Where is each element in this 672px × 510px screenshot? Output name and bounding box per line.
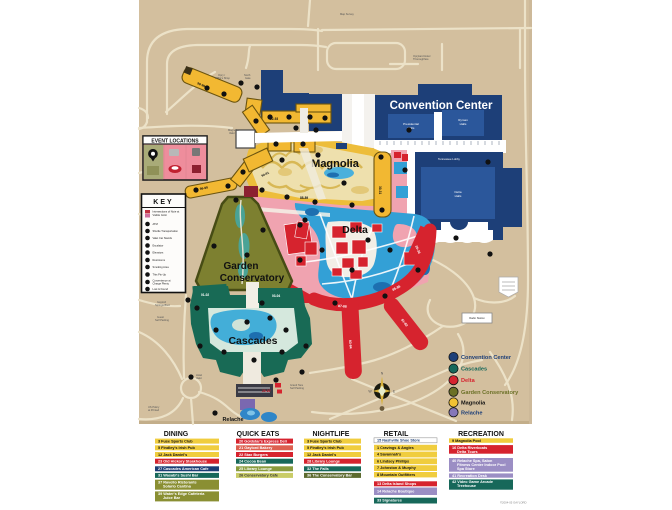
svg-text:Map Survey: Map Survey xyxy=(340,12,355,16)
svg-text:Cascades: Cascades xyxy=(461,367,487,373)
svg-text:23 Old Hickory Steakhouse: 23 Old Hickory Steakhouse xyxy=(158,460,207,464)
svg-text:Visible Color: Visible Color xyxy=(153,213,168,217)
svg-text:Tennessee Lobby: Tennessee Lobby xyxy=(438,157,461,161)
svg-text:Garden Conservatory: Garden Conservatory xyxy=(461,390,519,396)
svg-text:DINING: DINING xyxy=(164,431,189,438)
svg-text:Treehouse: Treehouse xyxy=(457,484,476,488)
svg-text:03-04: 03-04 xyxy=(272,294,280,298)
svg-text:Thoroughfare: Thoroughfare xyxy=(413,57,429,61)
svg-text:Valet: Valet xyxy=(229,131,235,135)
svg-text:Self Parking: Self Parking xyxy=(290,386,305,390)
svg-text:26 Conservatory Cafe: 26 Conservatory Cafe xyxy=(239,474,278,478)
svg-text:5 Findley's Irish Pub: 5 Findley's Irish Pub xyxy=(158,446,195,450)
svg-text:Delta: Delta xyxy=(461,378,476,384)
svg-text:Radio Station: Radio Station xyxy=(469,316,485,320)
svg-text:Escalator: Escalator xyxy=(153,244,164,248)
svg-text:32 The Falls: 32 The Falls xyxy=(307,467,329,471)
svg-text:Charge Plenty: Charge Plenty xyxy=(153,282,170,286)
svg-text:87-88: 87-88 xyxy=(338,304,347,309)
svg-text:KEY: KEY xyxy=(153,199,173,206)
svg-text:30-31: 30-31 xyxy=(378,186,382,194)
svg-text:Lost & Found: Lost & Found xyxy=(153,287,169,291)
svg-text:8 Mountain Outfitters: 8 Mountain Outfitters xyxy=(377,473,415,477)
svg-text:20 Goldstar's Express Deli: 20 Goldstar's Express Deli xyxy=(239,439,287,443)
svg-text:36 The Conservatory Bar: 36 The Conservatory Bar xyxy=(307,474,352,478)
svg-text:Delta Tours: Delta Tours xyxy=(457,450,478,454)
svg-text:12 Jack Daniel's: 12 Jack Daniel's xyxy=(307,453,336,457)
svg-text:Shuttle Transportation: Shuttle Transportation xyxy=(153,229,179,233)
svg-text:Willie's Shop: Willie's Shop xyxy=(215,76,230,80)
svg-text:3 Fuse Sports Club: 3 Fuse Sports Club xyxy=(307,439,342,443)
svg-text:Spa Store: Spa Store xyxy=(457,467,475,471)
svg-text:6 Lindsey Phillips: 6 Lindsey Phillips xyxy=(377,459,409,463)
svg-text:Delta: Delta xyxy=(342,224,368,236)
svg-text:Convention Center: Convention Center xyxy=(390,100,493,112)
svg-text:29-30: 29-30 xyxy=(262,389,271,393)
svg-text:Convention Center: Convention Center xyxy=(461,355,512,361)
svg-text:RETAIL: RETAIL xyxy=(384,431,409,438)
svg-text:15 Nashville Shoe Store: 15 Nashville Shoe Store xyxy=(377,439,420,443)
svg-text:28 Library Lounge: 28 Library Lounge xyxy=(307,460,340,464)
svg-text:NIGHTLIFE: NIGHTLIFE xyxy=(313,431,350,438)
svg-text:RECREATION: RECREATION xyxy=(458,431,504,438)
svg-text:27 Cascades American Cafe: 27 Cascades American Cafe xyxy=(158,467,209,471)
svg-text:Valet: Valet xyxy=(196,376,202,380)
svg-text:83-84: 83-84 xyxy=(348,340,353,349)
svg-text:13 Delta Island Shops: 13 Delta Island Shops xyxy=(377,482,416,486)
svg-text:01-02: 01-02 xyxy=(201,293,209,297)
svg-text:QUICK EATS: QUICK EATS xyxy=(237,431,280,438)
svg-text:EVENT LOCATIONS: EVENT LOCATIONS xyxy=(151,139,199,145)
svg-text:Elevators: Elevators xyxy=(153,251,165,255)
svg-text:Solario Cantina: Solario Cantina xyxy=(163,485,192,489)
svg-text:25 Library Lounge: 25 Library Lounge xyxy=(239,467,272,471)
svg-text:Relache: Relache xyxy=(222,417,243,423)
svg-text:9 Magnolia Pool: 9 Magnolia Pool xyxy=(452,439,481,443)
svg-text:12 Jack Daniel's: 12 Jack Daniel's xyxy=(158,453,187,457)
svg-text:1 Cravings & Angles: 1 Cravings & Angles xyxy=(377,446,414,450)
svg-text:Springs Blvd: Springs Blvd xyxy=(155,303,170,307)
svg-text:41 Recreation Desk: 41 Recreation Desk xyxy=(452,474,488,478)
svg-text:Restrooms: Restrooms xyxy=(153,258,166,262)
svg-text:5 Findley's Irish Pub: 5 Findley's Irish Pub xyxy=(307,446,344,450)
svg-text:This Pin-Up: This Pin-Up xyxy=(153,273,167,277)
svg-text:Gate: Gate xyxy=(245,76,251,80)
svg-text:©2004-05 GAYLORD: ©2004-05 GAYLORD xyxy=(500,501,527,505)
svg-text:31 Wasabi's Sushi Bar: 31 Wasabi's Sushi Bar xyxy=(158,474,199,478)
svg-text:Self Parking: Self Parking xyxy=(155,318,170,322)
svg-text:21 Gaylord Bakery: 21 Gaylord Bakery xyxy=(239,446,273,450)
svg-text:Valet Car Stands: Valet Car Stands xyxy=(153,236,173,240)
svg-text:ATM: ATM xyxy=(153,222,158,226)
svg-text:Magnolia: Magnolia xyxy=(461,401,486,407)
svg-text:24 Cocoa Bean: 24 Cocoa Bean xyxy=(239,460,267,464)
svg-text:Relache: Relache xyxy=(461,410,482,416)
svg-text:Halls: Halls xyxy=(460,122,467,126)
svg-text:Juice Bar: Juice Bar xyxy=(163,496,181,500)
svg-text:Smoking Area: Smoking Area xyxy=(153,265,170,269)
svg-text:3 Fuse Sports Club: 3 Fuse Sports Club xyxy=(158,439,193,443)
svg-text:88-89: 88-89 xyxy=(300,196,308,200)
svg-text:22 Stax Burgers: 22 Stax Burgers xyxy=(239,453,268,457)
svg-text:Cascades: Cascades xyxy=(228,335,277,347)
svg-text:Magnolia: Magnolia xyxy=(311,158,360,170)
svg-text:4 Savannah's: 4 Savannah's xyxy=(377,453,401,457)
svg-text:Garden: Garden xyxy=(223,261,258,272)
svg-text:Intersections of Note at: Intersections of Note at xyxy=(153,210,180,214)
svg-text:Halls: Halls xyxy=(455,194,462,198)
svg-text:33 Signatures: 33 Signatures xyxy=(377,499,402,503)
svg-text:at Printed: at Printed xyxy=(148,408,160,412)
svg-text:14 Relache Boutique: 14 Relache Boutique xyxy=(377,490,414,494)
svg-text:7 Johnston & Murphy: 7 Johnston & Murphy xyxy=(377,466,417,470)
